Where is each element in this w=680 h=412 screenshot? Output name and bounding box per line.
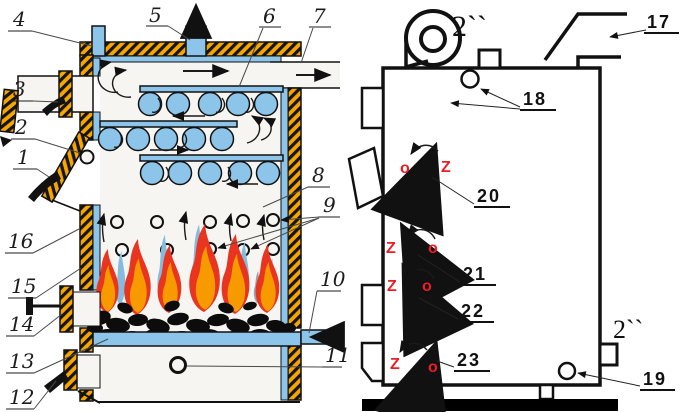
callout-10: 10	[320, 267, 346, 291]
callout-22: 22	[461, 301, 485, 321]
pipe-4	[92, 26, 105, 56]
lever-closed-letter: Z	[441, 159, 451, 176]
side-outlet-pipe	[600, 344, 617, 365]
callout-13: 13	[9, 349, 34, 373]
lever-open-letter: o	[422, 278, 432, 295]
fire-door-14	[26, 286, 100, 332]
boiler-diagrams-canvas: 4 5 6 7 3 2 1 16 15 14 13 12 8	[0, 0, 680, 412]
lever-open-letter: o	[400, 160, 410, 177]
pipe-size-bottom: 2``	[613, 315, 643, 344]
loading-door-1	[28, 132, 94, 211]
boiler-diagram-page: 4 5 6 7 3 2 1 16 15 14 13 12 8	[0, 0, 680, 412]
lever-closed-letter: Z	[390, 356, 400, 373]
callout-2: 2	[14, 115, 28, 139]
callout-5: 5	[149, 3, 162, 27]
callout-1: 1	[17, 145, 30, 169]
callout-23: 23	[457, 350, 481, 370]
callout-20: 20	[477, 186, 501, 206]
supply-pipe-5	[186, 26, 206, 56]
left-boiler-section: 4 5 6 7 3 2 1 16 15 14 13 12 8	[0, 3, 350, 409]
callout-3: 3	[13, 77, 26, 101]
callout-4: 4	[12, 7, 26, 31]
ash-port-11	[171, 358, 186, 373]
callout-14: 14	[9, 312, 34, 336]
hinge-2	[81, 151, 94, 164]
top-fitting	[479, 50, 500, 68]
side-brackets	[349, 88, 383, 381]
lever-closed-letter: Z	[387, 278, 397, 295]
base-plinth	[362, 399, 618, 411]
callout-9: 9	[323, 193, 336, 217]
sensor-well-18	[462, 71, 479, 88]
right-boiler-exterior: o Z Z o Z o Z o 2`` 2`` 17	[349, 10, 679, 411]
damper-plate-3	[59, 71, 72, 117]
right-wall	[281, 88, 301, 400]
callout-7: 7	[313, 4, 326, 28]
chimney-duct-17	[545, 14, 627, 68]
drain-valve-19	[559, 363, 575, 379]
pipe-size-top: 2``	[452, 10, 487, 43]
ash-door-12	[44, 350, 100, 393]
boiler-body	[383, 68, 600, 385]
callout-19: 19	[643, 369, 667, 389]
foot	[423, 385, 436, 399]
foot	[540, 385, 553, 399]
callout-18: 18	[523, 89, 547, 109]
callout-17: 17	[647, 12, 671, 32]
grate-13	[93, 332, 301, 346]
lever-closed-letter: Z	[386, 240, 396, 257]
lever-open-letter: o	[428, 240, 438, 257]
callout-12: 12	[9, 385, 34, 409]
callout-16: 16	[8, 229, 34, 253]
return-pipe-10	[301, 330, 334, 344]
callout-15: 15	[11, 274, 36, 298]
callout-21: 21	[463, 264, 487, 284]
boiler-interior	[100, 61, 281, 402]
callout-6: 6	[263, 4, 276, 28]
callout-11: 11	[325, 343, 350, 367]
callout-8: 8	[312, 163, 325, 187]
lever-open-letter: o	[428, 359, 438, 376]
